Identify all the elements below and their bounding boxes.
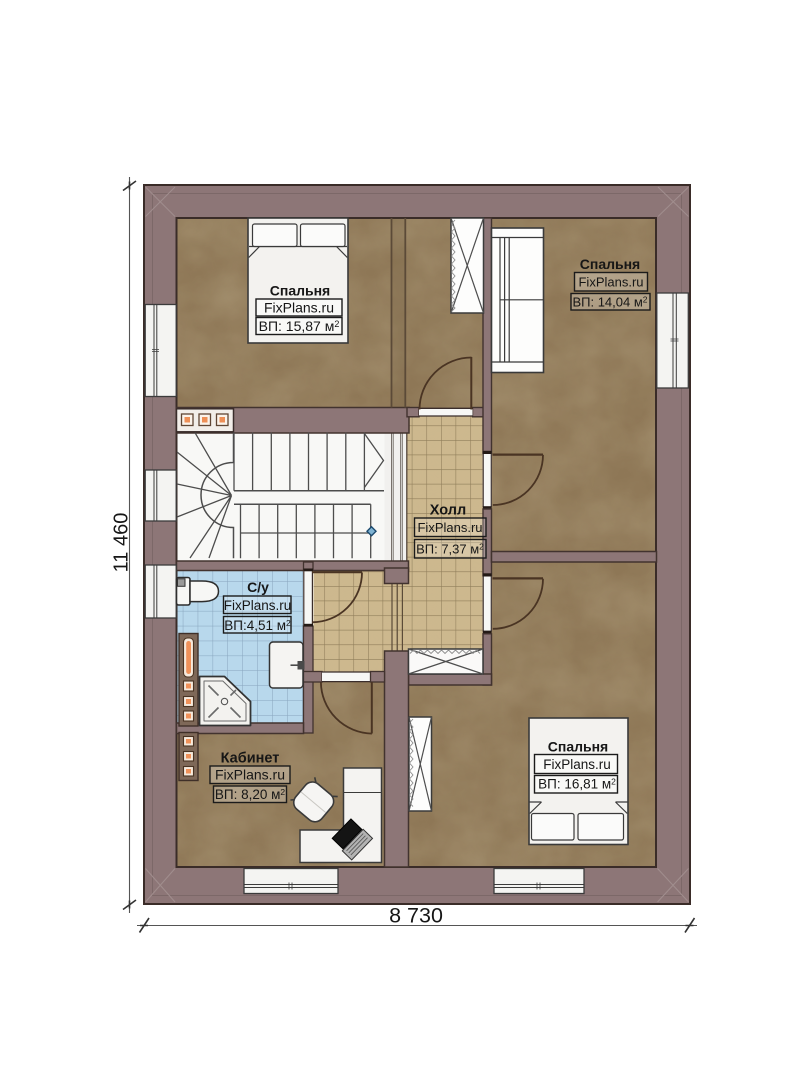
svg-text:FixPlans.ru: FixPlans.ru (543, 757, 611, 772)
svg-text:Спальня: Спальня (580, 256, 640, 272)
svg-text:Кабинет: Кабинет (221, 751, 280, 767)
svg-text:С/у: С/у (247, 579, 269, 595)
svg-text:FixPlans.ru: FixPlans.ru (578, 275, 643, 290)
svg-text:ВП: 14,04 м2: ВП: 14,04 м2 (572, 295, 647, 310)
svg-text:Спальня: Спальня (548, 739, 608, 755)
svg-text:FixPlans.ru: FixPlans.ru (215, 767, 285, 783)
svg-text:ВП: 15,87 м2: ВП: 15,87 м2 (259, 318, 340, 334)
svg-text:8 730: 8 730 (389, 904, 443, 928)
svg-text:ВП: 8,20 м2: ВП: 8,20 м2 (215, 787, 286, 802)
svg-text:FixPlans.ru: FixPlans.ru (264, 300, 334, 316)
svg-text:11 460: 11 460 (111, 513, 133, 573)
svg-text:ВП: 16,81 м2: ВП: 16,81 м2 (538, 777, 616, 792)
svg-text:Спальня: Спальня (270, 283, 330, 299)
svg-text:ВП: 7,37 м2: ВП: 7,37 м2 (416, 542, 484, 557)
svg-text:FixPlans.ru: FixPlans.ru (417, 520, 482, 535)
svg-text:ВП:4,51 м2: ВП:4,51 м2 (224, 618, 291, 633)
svg-text:Холл: Холл (430, 503, 466, 519)
svg-text:FixPlans.ru: FixPlans.ru (224, 598, 292, 613)
